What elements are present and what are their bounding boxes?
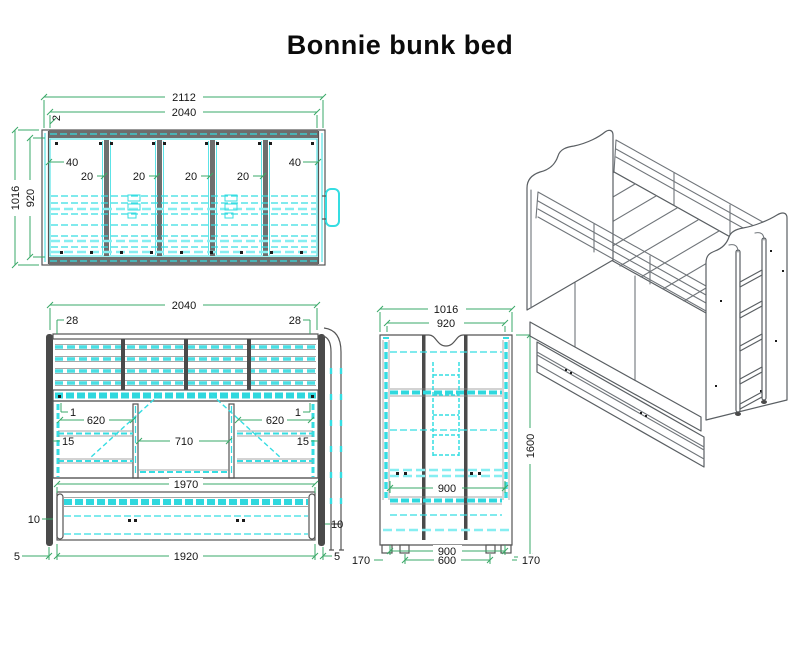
dim-label-side-920: 920 [437,318,455,330]
dim-label-900-mid: 900 [438,483,456,495]
side-view-drawing: 1016 920 1600 900 900 600 170 170 [348,303,545,567]
divider-4 [263,140,268,256]
dim-label-2: 2 [51,115,63,121]
trundle-dashes [64,516,308,534]
side-rail-left [422,335,426,540]
dim-label-20-2: 20 [133,171,145,183]
slat-lines [51,196,316,247]
guardrail-post-2 [184,339,188,390]
dim-line-28-right [303,320,310,334]
dim-line-1-right [303,403,310,412]
perspective-view-drawing [527,130,787,467]
dim-label-15-left: 15 [62,436,74,448]
dim-label-15-right: 15 [297,436,309,448]
dim-label-1-left: 1 [70,407,76,419]
trundle-post-left [57,494,63,539]
guardrail-top-rail [53,334,318,339]
dim-label-20-3: 20 [185,171,197,183]
divider-3 [210,140,215,256]
dim-label-1016: 1016 [10,186,22,210]
dim-line-5-left [22,547,52,560]
dim-label-600: 600 [438,555,456,567]
side-view-outline [380,335,512,545]
dim-label-710: 710 [175,436,193,448]
dim-label-170-left: 170 [352,555,370,567]
ladder-rails [323,328,344,550]
dim-label-620-right: 620 [266,415,284,427]
dim-label-920: 920 [25,189,37,207]
top-view-inner-outline [50,139,317,256]
dim-label-1920: 1920 [174,551,198,563]
dim-label-28-left: 28 [66,315,78,327]
leader-diagonals [90,394,281,458]
dim-label-20-1: 20 [81,171,93,183]
dim-label-1970: 1970 [174,479,198,491]
trundle-post-right [309,494,315,539]
ladder-3d-rail-left [736,250,740,412]
guardrail-post-1 [121,339,125,390]
dim-label-side-1016: 1016 [434,304,458,316]
top-view-outer-frame [42,130,325,265]
dim-label-5-right: 5 [334,551,340,563]
dim-label-620-left: 620 [87,415,105,427]
dim-label-5-left: 5 [14,551,20,563]
side-foot-4 [501,545,511,553]
top-view-drawing: 2112 2040 2 1016 920 40 40 20 20 20 20 [9,91,339,268]
dim-label-1600: 1600 [525,434,537,458]
ladder-rung-marks [331,368,341,504]
dim-line-1-left [61,403,68,412]
dim-label-10-left: 10 [28,514,40,526]
trundle-dots [128,519,245,522]
dim-label-170-right: 170 [522,555,540,567]
front-left-post [46,334,53,546]
screw-dots [55,142,314,254]
end-panel-cyan-lines [45,133,322,262]
bunk-bed-drawing-page: Bonnie bunk bed [0,0,800,657]
divider-1 [104,140,109,256]
side-rail-right [464,335,468,540]
front-dim-label-backgrounds [84,299,287,561]
ladder-foot-right [761,400,767,404]
front-right-post [318,334,325,546]
dim-label-40-left: 40 [66,157,78,169]
side-dots [396,472,481,475]
dim-label-40-right: 40 [289,157,301,169]
dim-label-front-2040: 2040 [172,300,196,312]
technical-drawing: 2112 2040 2 1016 920 40 40 20 20 20 20 [0,0,800,657]
page-title: Bonnie bunk bed [0,30,800,61]
ladder-foot-left [735,412,741,416]
dim-label-10-right: 10 [331,519,343,531]
side-foot-3 [486,545,495,553]
dim-label-2040: 2040 [172,107,196,119]
side-dim-label-backgrounds [348,303,545,565]
front-view-drawing: 2040 28 28 1 1 620 620 15 15 710 1970 10… [14,299,344,563]
dim-label-1-right: 1 [295,407,301,419]
dim-label-2112: 2112 [172,92,196,104]
ladder-side-profile [433,362,459,458]
head-panel [527,130,613,310]
ladder-3d-rail-right [762,238,766,400]
dim-line-28-left [57,320,64,334]
slat-bands [51,209,316,252]
handle [326,189,339,226]
side-foot-2 [400,545,409,553]
dim-line-5-right [320,547,332,560]
divider-2 [157,140,162,256]
dim-label-28-right: 28 [289,315,301,327]
dim-label-20-4: 20 [237,171,249,183]
guardrail-post-3 [247,339,251,390]
end-panel-edges [49,131,319,264]
